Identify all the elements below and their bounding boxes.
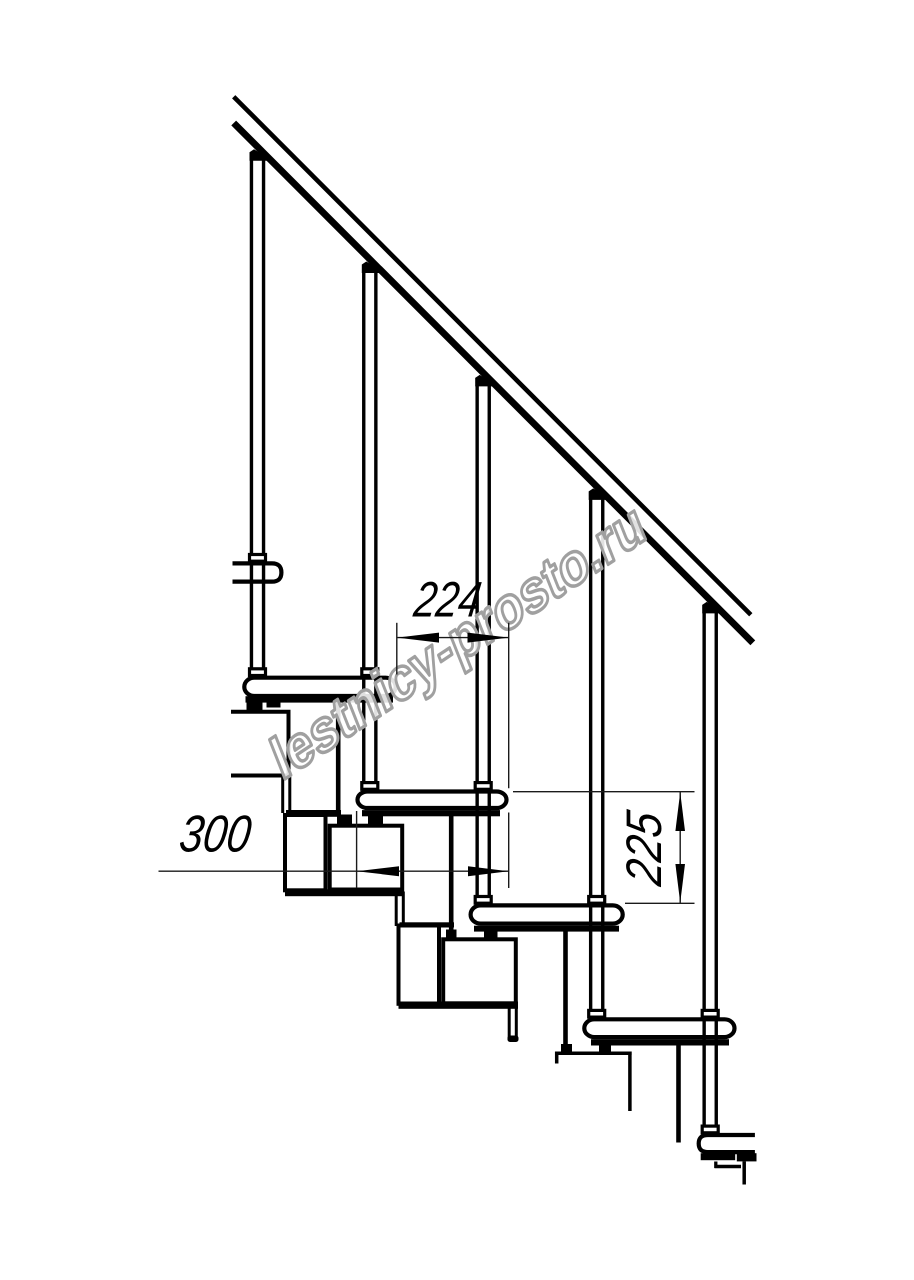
svg-text:225: 225	[616, 807, 672, 890]
svg-text:300: 300	[176, 806, 255, 864]
svg-text:224: 224	[410, 572, 485, 628]
